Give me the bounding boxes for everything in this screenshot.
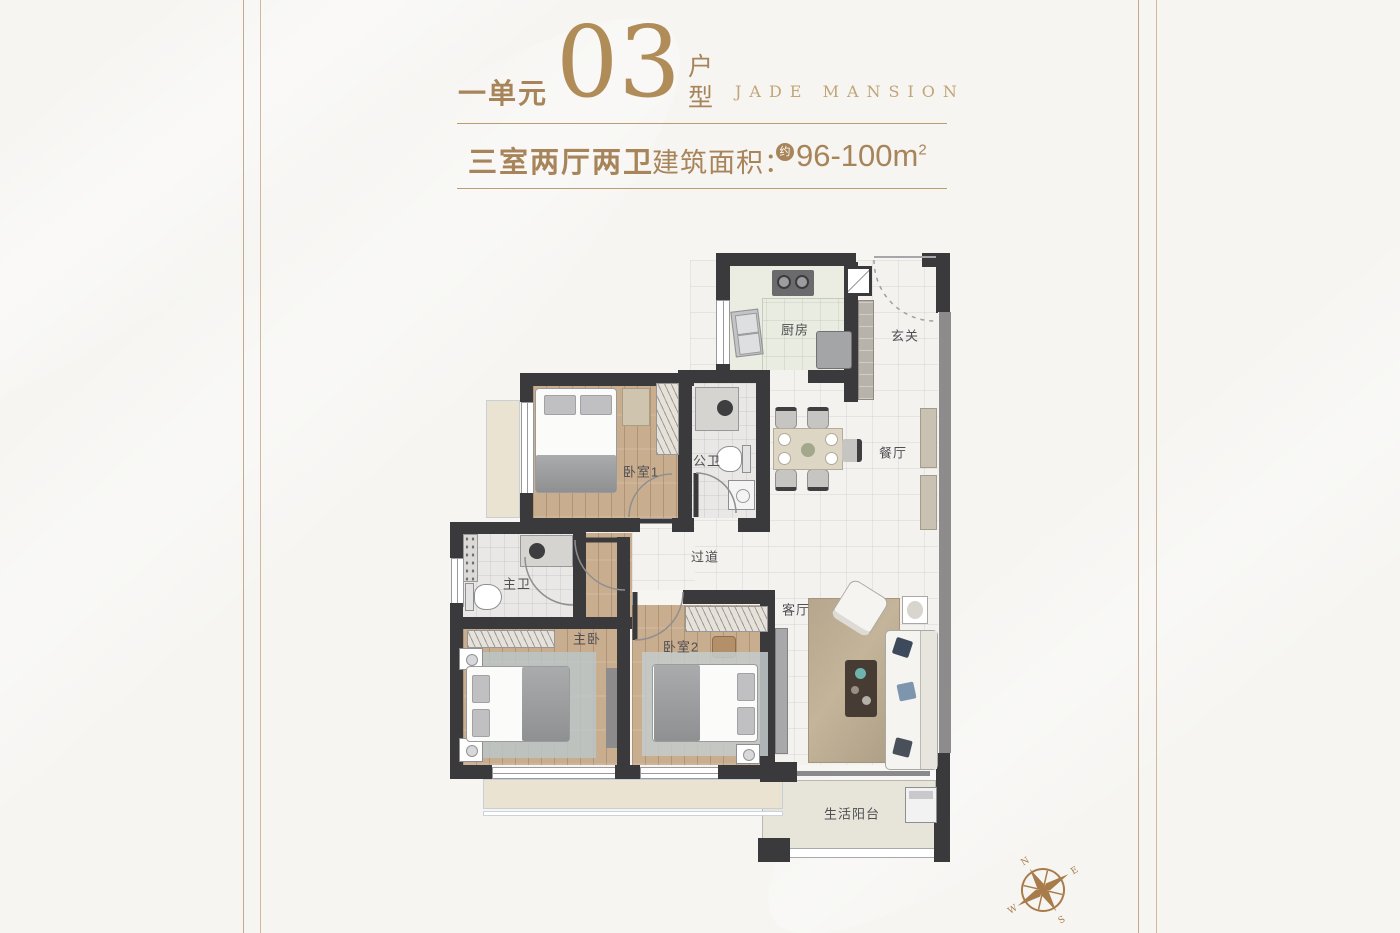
compass-label-n: N bbox=[1020, 856, 1032, 869]
floorplan: 厨房 玄关 餐厅 卧室1 公卫 过道 主卫 主卧 卧室2 客厅 生活阳台 bbox=[450, 250, 965, 875]
wall-segment bbox=[450, 765, 492, 779]
sofa-pillow bbox=[896, 681, 916, 701]
bottom-bay-sill bbox=[483, 811, 783, 816]
poster-page: 一单元 03 户 型 JADE MANSION 三室两厅两卫 建筑面积： 约 9… bbox=[0, 0, 1400, 933]
bedroom1-bay-window bbox=[486, 400, 520, 518]
master-bed bbox=[466, 666, 570, 742]
wall-segment bbox=[756, 370, 770, 532]
table-decor bbox=[851, 686, 859, 694]
area-value: 96-100m2 bbox=[796, 138, 927, 174]
header-rule-bottom bbox=[457, 188, 947, 189]
side-table bbox=[902, 596, 928, 624]
wall-segment bbox=[758, 838, 790, 862]
type-label: 户 型 bbox=[688, 52, 713, 114]
wall-segment bbox=[617, 537, 630, 767]
balcony-sliding-door bbox=[797, 771, 930, 776]
wall-right-window-column bbox=[938, 312, 951, 753]
washbasin bbox=[529, 543, 545, 559]
wall-segment bbox=[936, 753, 950, 793]
plate bbox=[778, 433, 791, 446]
layout-summary: 三室两厅两卫 bbox=[468, 139, 654, 181]
pillow bbox=[737, 673, 755, 701]
burner bbox=[795, 275, 809, 289]
area-label: 建筑面积： bbox=[652, 141, 792, 180]
wall-segment bbox=[615, 765, 640, 779]
table-decor bbox=[855, 668, 866, 679]
blanket bbox=[654, 665, 700, 741]
frame-line-left-inner bbox=[260, 0, 261, 933]
sink-basin bbox=[737, 333, 761, 356]
wall-segment bbox=[936, 253, 950, 313]
wall-segment bbox=[573, 534, 586, 617]
master-wardrobe bbox=[467, 630, 555, 648]
blanket bbox=[522, 667, 569, 741]
room-label-balcony: 生活阳台 bbox=[824, 804, 880, 823]
toilet-tank bbox=[742, 445, 751, 473]
approx-badge: 约 bbox=[776, 143, 794, 161]
entry-opening-sill bbox=[874, 256, 936, 258]
centerpiece bbox=[801, 443, 815, 457]
wall-segment bbox=[452, 522, 586, 534]
dining-chair bbox=[775, 407, 797, 429]
coffee-table bbox=[845, 660, 877, 717]
balcony-rail bbox=[785, 848, 936, 858]
kitchen-sink bbox=[730, 308, 763, 357]
bath-vanity bbox=[695, 387, 739, 431]
room-label-living: 客厅 bbox=[782, 600, 810, 619]
blanket bbox=[536, 455, 616, 492]
wall-segment bbox=[716, 253, 730, 300]
plate bbox=[778, 452, 791, 465]
dining-end-chair bbox=[842, 439, 862, 462]
entry-door-box bbox=[845, 266, 872, 296]
room-label-bedroom2: 卧室2 bbox=[663, 637, 699, 656]
shower-tray bbox=[728, 480, 755, 510]
bedroom1-wardrobe bbox=[656, 383, 679, 455]
frame-line-right-outer bbox=[1156, 0, 1157, 933]
sofa-pillow bbox=[892, 637, 913, 658]
washbasin bbox=[717, 400, 733, 416]
dining-chair bbox=[775, 469, 797, 491]
bedroom2-bed bbox=[652, 664, 758, 742]
stove bbox=[772, 270, 814, 296]
pillow bbox=[737, 707, 755, 735]
door-fold-line bbox=[848, 269, 869, 293]
unit-number: 03 bbox=[556, 14, 681, 112]
fridge bbox=[816, 331, 852, 369]
washer-lid bbox=[909, 791, 933, 799]
bedroom2-bottom-window bbox=[640, 767, 720, 779]
unit-label: 一单元 bbox=[458, 72, 548, 112]
room-label-master-bedroom: 主卧 bbox=[573, 629, 601, 648]
washing-machine bbox=[905, 787, 937, 823]
wall-segment bbox=[738, 518, 770, 532]
shower-drain bbox=[736, 489, 750, 503]
compass-label-e: E bbox=[1069, 865, 1080, 877]
wall-segment bbox=[716, 253, 856, 266]
room-label-master-bath: 主卫 bbox=[503, 574, 531, 593]
bedroom1-bed bbox=[535, 388, 617, 493]
sink-basin bbox=[735, 313, 759, 336]
wall-segment bbox=[520, 373, 533, 402]
dining-chair bbox=[807, 407, 829, 429]
master-bedroom-bottom-window bbox=[492, 767, 617, 779]
plate bbox=[825, 433, 838, 446]
burner bbox=[777, 275, 791, 289]
wall-segment bbox=[760, 762, 797, 782]
master-toilet bbox=[474, 584, 502, 610]
room-label-public-bath: 公卫 bbox=[693, 451, 721, 470]
room-label-kitchen: 厨房 bbox=[781, 320, 809, 339]
plate bbox=[825, 452, 838, 465]
pillow bbox=[580, 395, 612, 415]
bedroom1-desk bbox=[622, 388, 650, 426]
nightstand bbox=[736, 744, 760, 764]
wall-segment bbox=[450, 522, 463, 558]
bedrooms-bottom-bay-window bbox=[483, 779, 783, 809]
dining-cabinet bbox=[920, 408, 937, 468]
master-toilet-tank bbox=[465, 583, 474, 611]
dining-cabinet bbox=[920, 475, 937, 530]
master-vanity bbox=[520, 535, 573, 567]
room-label-corridor: 过道 bbox=[691, 547, 719, 566]
area-superscript: 2 bbox=[918, 142, 926, 159]
wall-segment bbox=[678, 373, 692, 518]
sofa bbox=[885, 630, 938, 770]
brand-en: JADE MANSION bbox=[735, 82, 965, 101]
compass-rose: N E S W bbox=[1001, 848, 1085, 932]
pillow bbox=[544, 395, 576, 415]
area-number: 96-100m bbox=[796, 138, 918, 173]
entry-cabinet bbox=[858, 300, 874, 400]
tv-cabinet bbox=[775, 628, 788, 754]
sofa-pillow bbox=[892, 737, 913, 758]
dining-table bbox=[773, 428, 843, 470]
kitchen-window bbox=[716, 300, 730, 370]
dining-chair bbox=[807, 469, 829, 491]
side-table-decor bbox=[907, 601, 923, 619]
room-label-bedroom1: 卧室1 bbox=[623, 462, 659, 481]
header-rule-top bbox=[457, 123, 947, 124]
bedroom1-window bbox=[521, 402, 534, 495]
type-char-top: 户 bbox=[688, 52, 713, 83]
bedroom2-wardrobe bbox=[685, 606, 768, 632]
frame-line-right-inner bbox=[1138, 0, 1139, 933]
sofa-back bbox=[920, 631, 937, 769]
table-decor bbox=[862, 696, 871, 705]
shower-strip bbox=[463, 534, 478, 582]
wall-segment bbox=[672, 518, 694, 532]
frame-line-left-outer bbox=[243, 0, 244, 933]
wall-segment bbox=[450, 617, 632, 629]
room-label-entry: 玄关 bbox=[891, 326, 919, 345]
type-char-bottom: 型 bbox=[688, 83, 713, 114]
compass-label-w: W bbox=[1006, 903, 1020, 917]
pocket-door-panel bbox=[606, 668, 617, 748]
compass-label-s: S bbox=[1057, 915, 1068, 927]
room-label-dining: 餐厅 bbox=[879, 443, 907, 462]
pillow bbox=[472, 709, 490, 737]
pillow bbox=[472, 675, 490, 703]
